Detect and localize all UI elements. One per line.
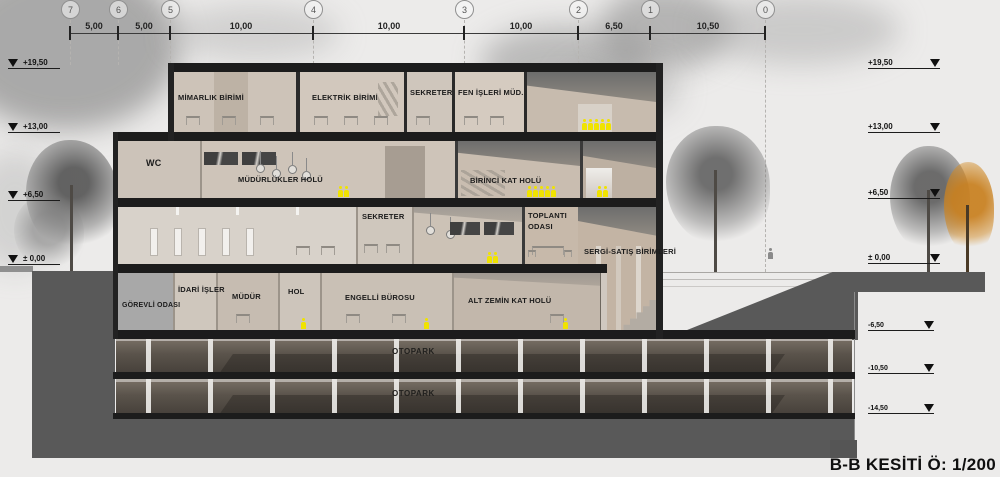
elevation-triangle-icon	[8, 191, 18, 199]
parking-level-2	[116, 379, 852, 415]
room-f0-hol	[280, 272, 320, 331]
parking-level-1	[116, 338, 852, 374]
dim-label: 5,00	[135, 21, 153, 31]
room-label-otopark-2: OTOPARK	[392, 389, 435, 398]
elevation-triangle-icon	[8, 123, 18, 131]
grid-bubble-label: 2	[576, 5, 581, 15]
grid-bubble-1: 1	[641, 0, 660, 19]
grid-bubble-7: 7	[61, 0, 80, 19]
foundation-slab	[113, 413, 855, 419]
room-label-gorevli: GÖREVLİ ODASI	[122, 302, 180, 309]
floor-slab-0	[113, 264, 607, 273]
elevation-triangle-icon	[930, 189, 940, 197]
room-label-mudurlukler: MÜDÜRLÜKLER HOLÜ	[238, 175, 323, 184]
dim-label: 10,50	[697, 21, 720, 31]
people-group	[301, 318, 306, 329]
dim-label: 10,00	[510, 21, 533, 31]
grid-bubble-4: 4	[304, 0, 323, 19]
room-f3-fenisleri	[454, 72, 524, 133]
floor-slab-650	[113, 198, 662, 207]
elevation-value: -6,50	[868, 322, 884, 329]
room-label-fenisleri: FEN İŞLERİ MÜD.	[458, 88, 524, 97]
ground-line	[660, 272, 835, 273]
earth-left	[32, 271, 115, 421]
elevation-triangle-icon	[930, 254, 940, 262]
elevation-value: +13,00	[23, 122, 48, 131]
grid-bubble-label: 3	[462, 5, 467, 15]
wall-left	[113, 132, 118, 339]
earth-bottom	[32, 418, 855, 458]
grid-bubble-label: 0	[763, 5, 768, 15]
cloud	[600, 0, 730, 70]
section-drawing: 7 6 5 4 3 2 1 0 5,00 5,00 10,00 10,00 10…	[0, 0, 1000, 477]
elevation-triangle-icon	[924, 364, 934, 372]
dim-tick	[577, 26, 579, 40]
room-f1-hall	[412, 206, 522, 266]
dim-label: 10,00	[378, 21, 401, 31]
room-f3-sekreter	[406, 72, 452, 133]
room-label-sekreter-f3: SEKRETER	[410, 88, 452, 97]
wall-right	[656, 63, 663, 339]
room-f2-mudurlukler	[200, 140, 455, 199]
people-group	[338, 186, 349, 197]
people-group	[527, 186, 556, 197]
room-label-birincikat: BİRİNCİ KAT HOLÜ	[470, 176, 541, 185]
section-title: B-B KESİTİ Ö: 1/200	[830, 455, 996, 475]
dim-label: 6,50	[605, 21, 623, 31]
elevation-marker-right-m1450: -14,50	[868, 404, 934, 414]
room-label-mudur: MÜDÜR	[232, 292, 261, 301]
room-label-wc: WC	[146, 158, 161, 168]
room-label-idari: İDARİ İŞLER	[178, 285, 225, 294]
room-f0-idari	[175, 272, 216, 331]
dim-tick	[69, 26, 71, 40]
room-label-otopark-1: OTOPARK	[392, 347, 435, 356]
elevation-triangle-icon	[930, 123, 940, 131]
floor-slab-b2	[113, 372, 855, 379]
grid-bubble-label: 5	[168, 5, 173, 15]
dim-tick	[764, 26, 766, 40]
people-group	[597, 186, 608, 197]
elevation-marker-right-1300: +13,00	[868, 122, 940, 133]
elevation-value: ± 0,00	[23, 254, 45, 263]
elevation-value: ± 0,00	[868, 253, 890, 262]
roof-slab	[168, 63, 662, 72]
elevation-marker-left-000: ± 0,00	[8, 254, 60, 265]
room-label-engelli: ENGELLİ BÜROSU	[345, 293, 415, 302]
people-group	[582, 119, 611, 130]
elevation-value: +6,50	[868, 188, 888, 197]
grid-bubble-label: 6	[116, 5, 121, 15]
elevation-marker-right-m1050: -10,50	[868, 364, 934, 374]
elevation-value: +13,00	[868, 122, 893, 131]
elevation-value: +19,50	[23, 58, 48, 67]
dim-tick	[169, 26, 171, 40]
grid-bubble-label: 4	[311, 5, 316, 15]
elevation-marker-left-1300: +13,00	[8, 122, 60, 133]
room-f2-birincikat	[455, 140, 580, 199]
room-label-sergi: SERGİ-SATIŞ BİRİMLERİ	[584, 247, 676, 256]
room-f3-elektrik	[300, 72, 404, 133]
ground-line	[0, 266, 33, 272]
people-group	[563, 318, 568, 329]
grid-bubble-3: 3	[455, 0, 474, 19]
elevation-triangle-icon	[924, 321, 934, 329]
grid-bubble-6: 6	[109, 0, 128, 19]
room-f1-left	[116, 206, 356, 266]
floor-slab-b1	[113, 330, 855, 339]
elevation-triangle-icon	[924, 404, 934, 412]
elevation-value: +6,50	[23, 190, 43, 199]
elevation-value: -10,50	[868, 365, 888, 372]
elevation-marker-right-1950: +19,50	[868, 58, 940, 69]
grid-bubble-label: 7	[68, 5, 73, 15]
elevation-marker-left-1950: +19,50	[8, 58, 60, 69]
earth-right-band	[833, 272, 985, 292]
room-label-elektrik: ELEKTRİK BİRİMİ	[312, 93, 378, 102]
room-label-altzemin: ALT ZEMİN KAT HOLÜ	[468, 296, 551, 305]
elevation-triangle-icon	[8, 255, 18, 263]
dim-tick	[312, 26, 314, 40]
room-label-sekreter-f1: SEKRETER	[362, 212, 404, 221]
elevation-triangle-icon	[8, 59, 18, 67]
room-f3-mimarlik	[174, 72, 296, 133]
dimension-line	[70, 33, 765, 34]
dim-tick	[117, 26, 119, 40]
wall-top-left	[168, 63, 174, 141]
grid-bubble-label: 1	[648, 5, 653, 15]
dim-label: 10,00	[230, 21, 253, 31]
room-f2-wc	[116, 140, 200, 199]
elevation-value: +19,50	[868, 58, 893, 67]
dim-tick	[463, 26, 465, 40]
elevation-marker-right-650: +6,50	[868, 188, 940, 199]
pedestrian-figure	[768, 248, 773, 259]
room-label-toplanti: TOPLANTI ODASI	[528, 211, 574, 233]
room-f2-right	[580, 140, 656, 199]
dim-tick	[649, 26, 651, 40]
grid-bubble-0: 0	[756, 0, 775, 19]
floor-slab-13	[113, 132, 662, 141]
grid-bubble-2: 2	[569, 0, 588, 19]
people-group	[487, 252, 498, 263]
grid-line	[765, 20, 766, 272]
people-group	[424, 318, 429, 329]
dim-label: 5,00	[85, 21, 103, 31]
room-label-mimarlik: MİMARLIK BİRİMİ	[178, 93, 244, 102]
elevation-value: -14,50	[868, 405, 888, 412]
elevation-marker-left-650: +6,50	[8, 190, 60, 201]
room-f0-mudur	[218, 272, 278, 331]
room-label-hol: HOL	[288, 287, 304, 296]
elevation-triangle-icon	[930, 59, 940, 67]
elevation-marker-right-000: ± 0,00	[868, 253, 940, 264]
elevation-marker-right-m650: -6,50	[868, 321, 934, 331]
grid-bubble-5: 5	[161, 0, 180, 19]
ground-line	[660, 279, 830, 280]
